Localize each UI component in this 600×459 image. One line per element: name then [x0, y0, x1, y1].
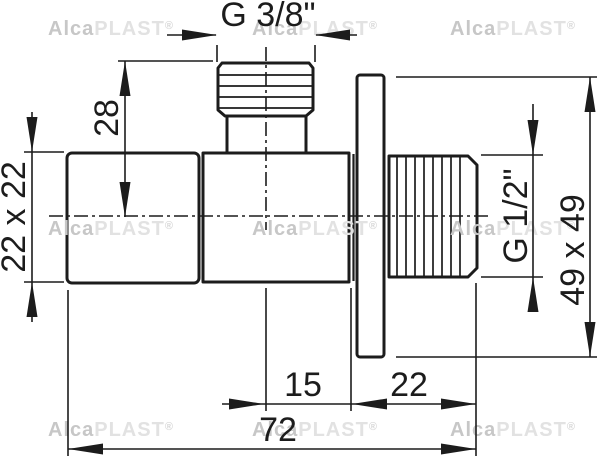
dim-label-handle-section: 22 x 22: [0, 161, 33, 273]
watermark-alcaplast: AlcaPLAST®: [48, 419, 174, 441]
dim-label-outlet-thread: G 1/2": [497, 168, 535, 263]
dim-label-inlet-height: 28: [88, 99, 126, 137]
dim-label-plate-section: 49 x 49: [554, 194, 592, 306]
dim-label-overall-length: 72: [259, 411, 297, 449]
dim-label-axis-to-plate: 15: [284, 366, 322, 404]
angle-valve-drawing: AlcaPLAST® AlcaPLAST® AlcaPLAST® AlcaPLA…: [0, 0, 600, 459]
dim-label-inlet-thread: G 3/8": [220, 0, 315, 34]
watermark-alcaplast: AlcaPLAST®: [252, 218, 378, 240]
watermark-alcaplast: AlcaPLAST®: [450, 18, 576, 40]
dim-plate-to-outlet-end: 22: [390, 366, 476, 410]
dim-axis-to-plate: 15: [222, 366, 476, 410]
dim-handle-section: 22 x 22: [0, 112, 64, 322]
dim-outlet-thread: G 1/2": [481, 104, 543, 312]
technical-drawing-page: AlcaPLAST® AlcaPLAST® AlcaPLAST® AlcaPLA…: [0, 0, 600, 459]
valve-assembly: [67, 63, 477, 357]
watermark-alcaplast: AlcaPLAST®: [48, 18, 174, 40]
dim-label-plate-to-outlet-end: 22: [390, 366, 428, 404]
watermark-alcaplast: AlcaPLAST®: [48, 218, 174, 240]
watermark-alcaplast: AlcaPLAST®: [450, 419, 576, 441]
